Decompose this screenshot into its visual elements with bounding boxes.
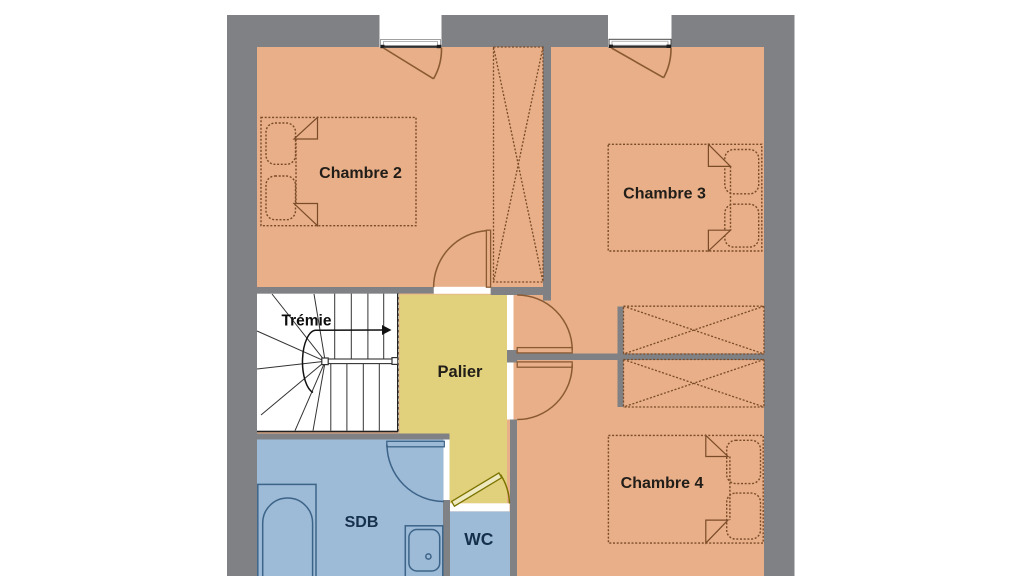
svg-text:WC: WC — [464, 529, 494, 549]
svg-text:Chambre 3: Chambre 3 — [623, 186, 706, 203]
svg-text:Palier: Palier — [438, 363, 484, 381]
svg-text:Chambre 2: Chambre 2 — [319, 165, 402, 182]
svg-text:Trémie: Trémie — [282, 313, 332, 330]
svg-text:Chambre 4: Chambre 4 — [621, 475, 704, 492]
svg-text:SDB: SDB — [345, 514, 379, 531]
